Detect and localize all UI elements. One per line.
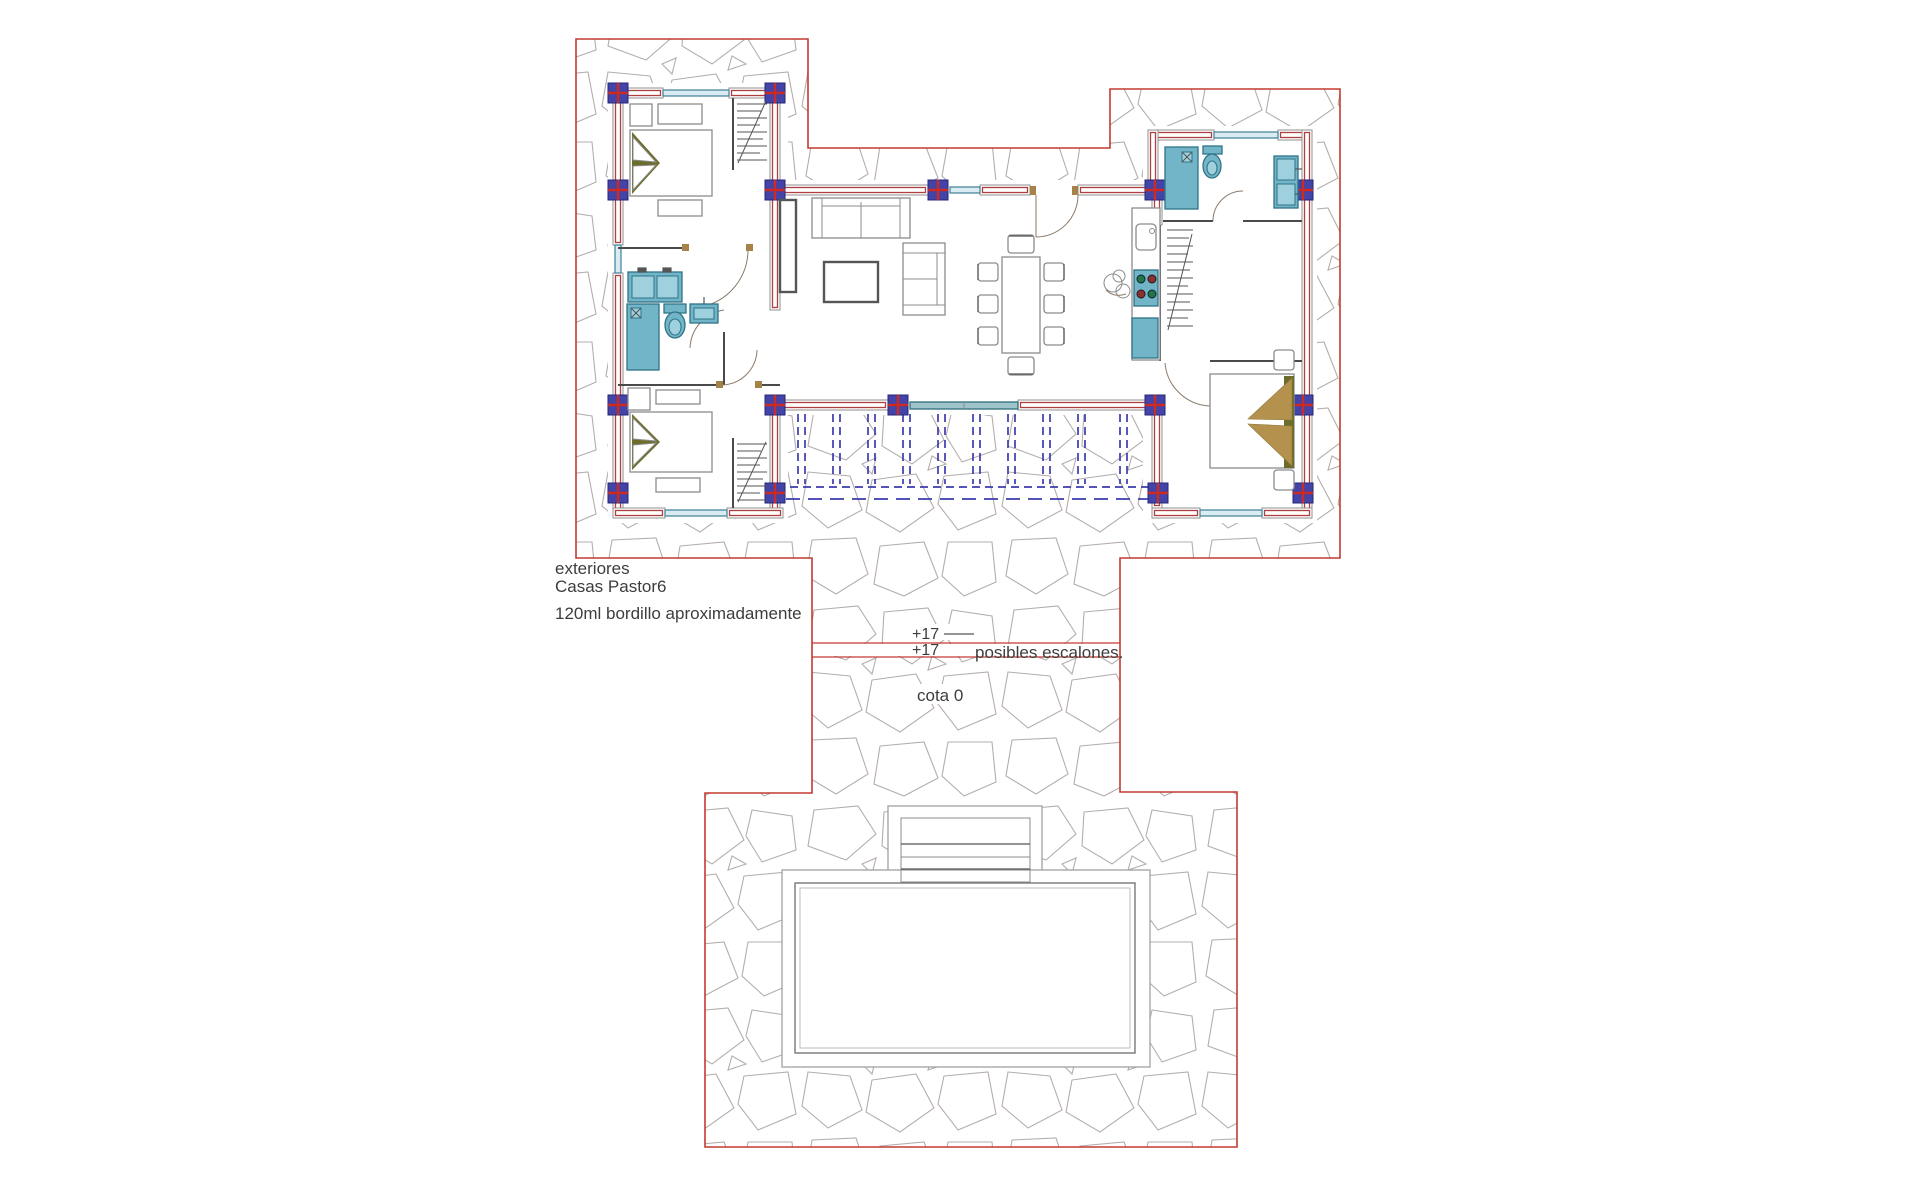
shower [1165, 147, 1198, 209]
sofa-large [812, 198, 910, 238]
nightstand [630, 104, 652, 126]
toilet [1203, 146, 1222, 178]
column [765, 180, 785, 200]
toilet [664, 304, 686, 338]
label-level-lower: +17 [912, 642, 939, 659]
tv-unit [780, 200, 796, 292]
window-master-bottom [1200, 510, 1262, 516]
shower [627, 304, 659, 370]
column [608, 180, 628, 200]
window-bath-west [615, 245, 621, 273]
nightstand [628, 388, 650, 410]
window-bedroom1-top [663, 90, 729, 96]
label-exteriores: exteriores [555, 559, 630, 578]
dining-table [1002, 257, 1040, 353]
column [1145, 395, 1165, 415]
column [888, 395, 908, 415]
window-bath2-top [1214, 132, 1278, 138]
dresser [658, 104, 702, 124]
floor-plan-drawing: exteriores Casas Pastor6 120ml bordillo … [0, 0, 1920, 1200]
column [608, 395, 628, 415]
dresser [656, 478, 700, 492]
window-bedroom2-bottom [665, 510, 727, 516]
dresser [656, 390, 700, 404]
fridge [1132, 318, 1158, 358]
column [1293, 483, 1313, 503]
column [765, 483, 785, 503]
kitchen-sink [1136, 224, 1156, 250]
column [1145, 180, 1165, 200]
nightstand [1274, 350, 1294, 370]
sofa-small [903, 243, 945, 315]
label-level-upper: +17 [912, 626, 939, 643]
floor-plan-page: exteriores Casas Pastor6 120ml bordillo … [0, 0, 1920, 1200]
label-escalones: posibles escalones. [975, 643, 1123, 662]
column [1148, 483, 1168, 503]
column [765, 395, 785, 415]
cooktop [1134, 270, 1158, 306]
label-bordillo: 120ml bordillo aproximadamente [555, 604, 802, 623]
coffee-table [824, 262, 878, 302]
column [928, 180, 948, 200]
column [608, 483, 628, 503]
nightstand [1274, 470, 1294, 490]
vanity-double-sink [1274, 156, 1302, 208]
pool-deck [782, 870, 1150, 1067]
window-living-top [950, 187, 980, 193]
column [1293, 395, 1313, 415]
pool-steps-landing [888, 806, 1042, 872]
column [765, 83, 785, 103]
column [608, 83, 628, 103]
label-casas-pastor: Casas Pastor6 [555, 577, 667, 596]
dresser [658, 200, 702, 216]
label-cota: cota 0 [917, 686, 963, 705]
